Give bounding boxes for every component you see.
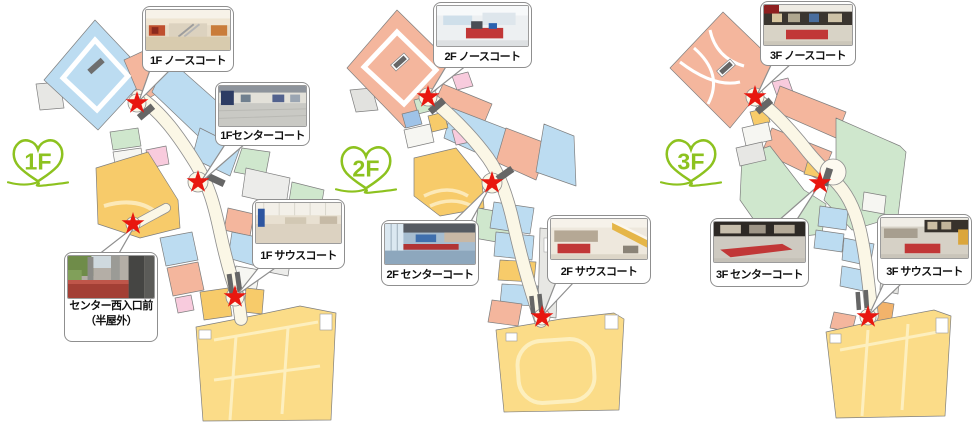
callout-label-2f-south: 2F サウスコート: [561, 260, 638, 281]
callout-label-3f-south: 3F サウスコート: [886, 259, 963, 282]
callout-3f-south-court[interactable]: 3F サウスコート: [877, 214, 972, 285]
map-blocks-2f: [347, 10, 624, 412]
callout-center-west-entrance[interactable]: センター西入口前 （半屋外）: [64, 252, 158, 342]
floor-badge-3f: 3F: [660, 131, 722, 194]
photo-1f-south-court: [255, 202, 342, 244]
photo-2f-center-court: [384, 223, 476, 265]
heart-logo-2f: 2F: [335, 138, 397, 196]
photo-3f-north-court: [763, 4, 853, 46]
callout-label-2f-north: 2F ノースコート: [445, 47, 521, 65]
callout-label-west-entrance-sub: （半屋外）: [67, 314, 155, 329]
callout-1f-center-court[interactable]: 1Fセンターコート: [215, 82, 310, 146]
callout-3f-north-court[interactable]: 3F ノースコート: [760, 1, 856, 66]
floor-badge-label: 3F: [677, 149, 704, 175]
floor-badge-1f: 1F: [7, 131, 69, 194]
floor-badge-2f: 2F: [335, 138, 397, 201]
callout-label-1f-north: 1F ノースコート: [150, 51, 226, 69]
callout-3f-center-court[interactable]: 3F センターコート: [710, 218, 809, 287]
photo-1f-center-court: [218, 85, 307, 127]
callout-label-3f-center: 3F センターコート: [716, 263, 803, 284]
heart-logo-1f: 1F: [7, 131, 69, 189]
callout-2f-north-court[interactable]: 2F ノースコート: [433, 2, 532, 68]
mall-floor-maps-canvas: 1F 2F 3F 1F ノースコート 1Fセンターコート 1F サウ: [0, 0, 980, 422]
floor-badge-label: 2F: [352, 156, 379, 182]
photo-2f-north-court: [436, 5, 529, 47]
callout-1f-north-court[interactable]: 1F ノースコート: [142, 6, 234, 72]
floor-badge-label: 1F: [24, 149, 51, 175]
photo-1f-north-court: [145, 9, 231, 51]
floor-map-2f: [347, 10, 624, 412]
callout-label-1f-center: 1Fセンターコート: [220, 127, 304, 143]
callout-label-west-entrance: センター西入口前: [67, 299, 155, 314]
callout-label-1f-south: 1F サウスコート: [260, 244, 337, 266]
photo-3f-center-court: [713, 221, 806, 263]
callout-2f-south-court[interactable]: 2F サウスコート: [547, 215, 651, 284]
photo-center-west-entrance: [67, 255, 155, 299]
photo-2f-south-court: [550, 218, 648, 260]
callout-label-2f-center: 2F センターコート: [387, 265, 474, 283]
photo-3f-south-court: [880, 217, 969, 259]
callout-2f-center-court[interactable]: 2F センターコート: [381, 220, 479, 286]
callout-1f-south-court[interactable]: 1F サウスコート: [252, 199, 345, 269]
heart-logo-3f: 3F: [660, 131, 722, 189]
callout-label-3f-north: 3F ノースコート: [770, 46, 846, 63]
